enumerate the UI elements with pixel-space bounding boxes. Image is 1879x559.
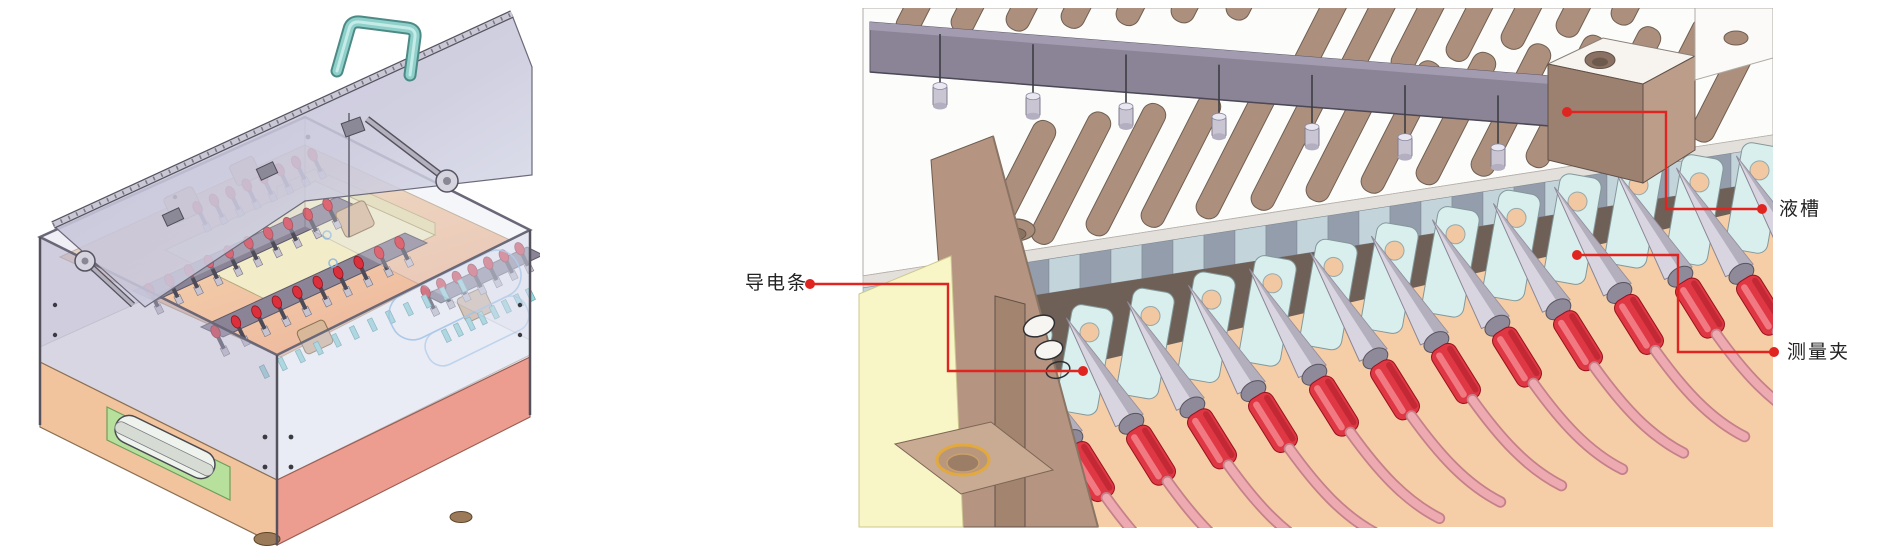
- cad-closeup-illustration: [843, 8, 1773, 528]
- label-liquid-trough: 液槽: [1779, 197, 1821, 221]
- assembly-overview-figure: [15, 5, 540, 550]
- label-measuring-clip: 测量夹: [1787, 340, 1850, 364]
- detail-closeup-figure: [843, 8, 1773, 528]
- foot: [450, 512, 472, 523]
- cad-box-illustration: [15, 5, 540, 550]
- yellow-panel: [859, 256, 963, 527]
- figure-page: 导电条 液槽 测量夹: [0, 0, 1879, 559]
- corner-post: [995, 296, 1025, 527]
- label-conductive-strip: 导电条: [745, 271, 808, 295]
